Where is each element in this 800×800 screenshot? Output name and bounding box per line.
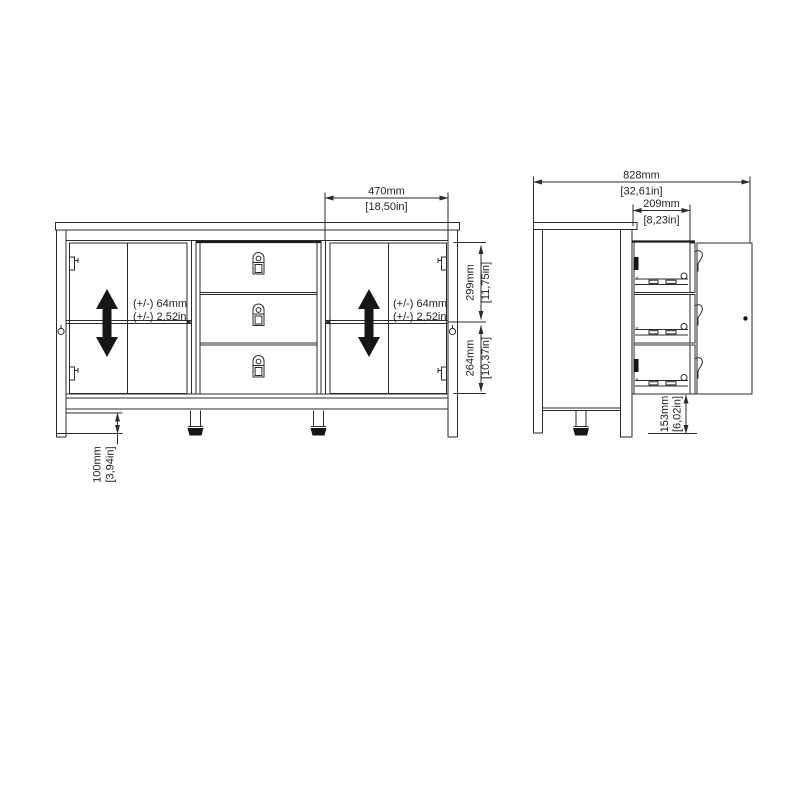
drawer-front-edge: [690, 243, 695, 293]
dimension-diagram: (+/-) 64mm (+/-) 2,52in: [0, 0, 800, 800]
shelf-tolerance-left-in: (+/-) 2,52in: [133, 311, 187, 323]
dim-total-depth-open: 828mm [32,61in]: [534, 170, 751, 244]
dim-upper-door-height-in: [11,75in]: [480, 262, 492, 303]
dim-drawer-extension-in: [8,23in]: [643, 215, 679, 227]
dim-upper-door-height: 299mm [11,75in]: [454, 243, 493, 320]
front-right-side-panel: [448, 230, 458, 437]
adjustable-foot-icon: [573, 411, 589, 436]
hinge-icon: [695, 358, 703, 379]
dim-drawer-extension-mm: 209mm: [643, 198, 680, 210]
dim-bottom-clearance: 153mm [6,02in]: [648, 395, 697, 434]
dim-upper-door-height-mm: 299mm: [465, 264, 477, 301]
hinge-icon: [695, 251, 703, 272]
drawer-handle-icon: [253, 253, 264, 275]
drawer-slide-icon: [635, 375, 688, 387]
dim-lower-door-height-mm: 264mm: [465, 340, 477, 377]
dim-door-section-width-in: [18,50in]: [365, 201, 407, 213]
adjustable-foot-icon: [311, 411, 327, 436]
left-door-compartment: (+/-) 64mm (+/-) 2,52in: [58, 241, 196, 395]
dim-total-depth-in: [32,61in]: [620, 186, 662, 198]
dim-lower-door-height: 264mm [10,37in]: [448, 322, 492, 394]
dim-lower-door-height-in: [10,37in]: [480, 337, 492, 379]
shelf-tolerance-right-in: (+/-) 2,52in: [393, 311, 447, 323]
right-door-handle-icon: [449, 328, 455, 334]
side-front-panel: [621, 230, 633, 438]
drawer-front-edge: [690, 295, 695, 344]
drawer-handle-icon: [253, 356, 264, 378]
drawer-front-edge: [690, 345, 695, 394]
side-back-panel: [534, 230, 543, 434]
shelf-tolerance-left-mm: (+/-) 64mm: [133, 298, 187, 310]
dim-drawer-extension: 209mm [8,23in]: [633, 198, 690, 243]
hinge-icon: [695, 305, 703, 326]
dim-total-depth-mm: 828mm: [623, 170, 660, 182]
dim-leg-clearance: 100mm [3,94in]: [57, 413, 123, 483]
side-view: [534, 223, 753, 438]
drawer-handle-icon: [253, 304, 264, 326]
dimension-diagram-page: (+/-) 64mm (+/-) 2,52in: [0, 0, 800, 800]
dim-bottom-clearance-mm: 153mm: [659, 396, 671, 433]
side-extended-drawers: [632, 242, 697, 395]
side-top-panel: [534, 223, 638, 230]
hinge-icon: [438, 367, 447, 380]
drawer-stack: [196, 242, 321, 394]
drawer-slide-icon: [635, 273, 688, 285]
door-handle-dot-icon: [743, 316, 747, 320]
hinge-icon: [438, 257, 447, 270]
dim-leg-clearance-in: [3,94in]: [105, 446, 117, 482]
adjustable-foot-icon: [188, 411, 204, 436]
shelf-tolerance-right-mm: (+/-) 64mm: [393, 298, 447, 310]
dim-bottom-clearance-in: [6,02in]: [672, 396, 684, 432]
front-view: (+/-) 64mm (+/-) 2,52in: [56, 223, 460, 438]
dim-door-section-width-mm: 470mm: [368, 186, 405, 198]
hinge-icon: [70, 367, 79, 380]
drawer-slide-icon: [635, 324, 688, 336]
front-top-panel: [56, 223, 460, 231]
dim-door-section-width: 470mm [18,50in]: [325, 186, 448, 241]
right-door-compartment: (+/-) 64mm (+/-) 2,52in: [321, 241, 456, 395]
side-open-door: [695, 243, 753, 394]
left-door-handle-icon: [58, 328, 64, 334]
hinge-icon: [70, 257, 79, 270]
front-left-side-panel: [57, 230, 67, 437]
dim-leg-clearance-mm: 100mm: [92, 446, 104, 483]
